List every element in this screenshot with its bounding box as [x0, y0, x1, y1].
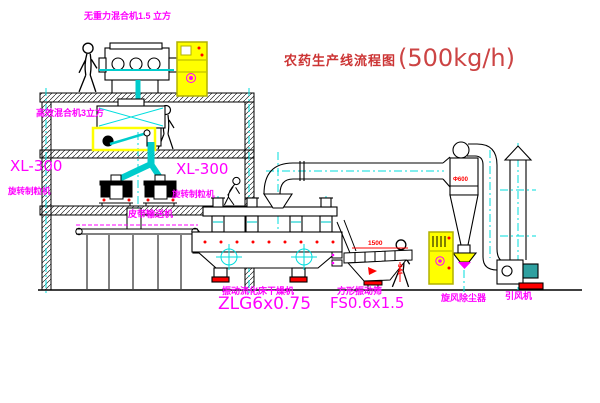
person-roof [79, 43, 97, 92]
title-text: 农药生产线流程图 [284, 50, 396, 72]
dim-screen-height: 941 [396, 264, 403, 275]
label-fan: 引风机 [505, 292, 532, 301]
label-belt-conveyor: 皮带输送机 [128, 210, 173, 219]
cyclone-separator [450, 142, 478, 269]
label-gravity-free-mixer: 无重力混合机1.5 立方 [84, 12, 171, 21]
control-cabinet-roof [177, 42, 207, 96]
drawing-title: 农药生产线流程图 (500kg/h) [284, 44, 515, 72]
label-granulator-right: 旋转制粒机 [172, 190, 215, 199]
label-xl300-left: XL-300 [10, 159, 62, 174]
dim-screen-length: 1500 [368, 241, 382, 248]
label-high-efficiency-mixer: 高效混合机3立方 [36, 109, 104, 118]
label-cyclone: 旋风除尘器 [441, 294, 486, 303]
exhaust-duct [264, 157, 450, 208]
dim-cyclone-diameter: Φ600 [453, 177, 468, 183]
vibrating-screen [332, 220, 412, 290]
control-cabinet-ground [429, 232, 453, 284]
label-xl300-right: XL-300 [176, 162, 228, 177]
granulator-left [99, 175, 133, 206]
induced-draft-fan [497, 260, 543, 289]
belt-conveyor [76, 225, 209, 289]
label-granulator-left: 旋转制粒机 [8, 187, 51, 196]
person-granulator-floor [224, 177, 240, 205]
label-dryer-model: ZLG6x0.75 [218, 296, 311, 313]
title-capacity: (500kg/h) [398, 44, 515, 72]
fluid-bed-dryer [192, 198, 342, 282]
label-screen-model: FS0.6x1.5 [330, 296, 404, 311]
diagram-canvas: 农药生产线流程图 (500kg/h) 无重力混合机1.5 立方 高效混合机3立方… [0, 0, 600, 403]
